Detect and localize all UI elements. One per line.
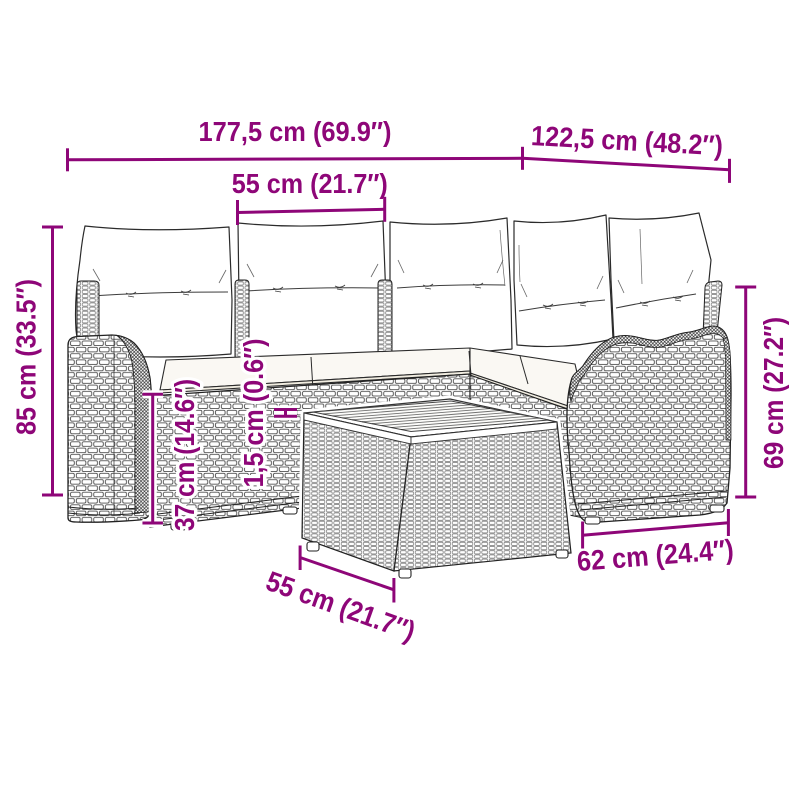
svg-text:85 cm (33.5″): 85 cm (33.5″) xyxy=(11,279,42,435)
svg-text:1,5 cm (0.6″): 1,5 cm (0.6″) xyxy=(238,339,269,488)
svg-text:55 cm (21.7″): 55 cm (21.7″) xyxy=(232,168,388,199)
svg-text:69 cm (27.2″): 69 cm (27.2″) xyxy=(758,317,789,469)
svg-text:177,5 cm (69.9″): 177,5 cm (69.9″) xyxy=(199,116,392,147)
svg-text:37 cm (14.6″): 37 cm (14.6″) xyxy=(169,379,200,531)
